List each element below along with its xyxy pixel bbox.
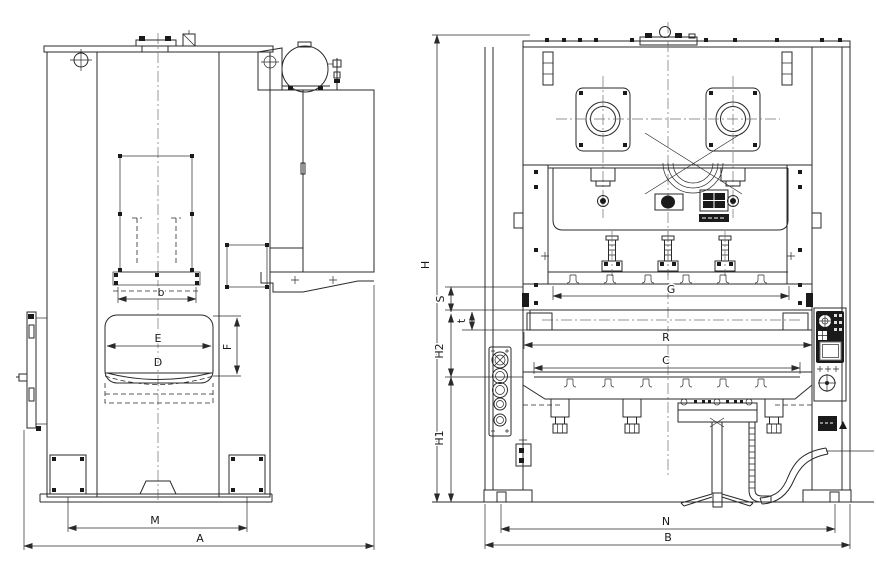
press-dimension-drawing: b E D F	[0, 0, 876, 563]
side-control-strip	[16, 312, 47, 431]
crown-top-hardware	[545, 27, 842, 46]
bolster	[523, 372, 812, 433]
dim-overall-depth: A	[24, 285, 374, 550]
side-feet	[40, 455, 272, 502]
front-feet	[432, 490, 874, 502]
bolster-leg-3	[765, 399, 783, 433]
slide-front	[523, 168, 812, 284]
dim-label-B: B	[664, 531, 672, 544]
dim-plate-thickness: t	[445, 310, 530, 330]
dim-label-S: S	[434, 295, 447, 302]
slide-button	[661, 196, 675, 209]
dim-h1: H1	[433, 377, 451, 502]
crown-slots	[543, 52, 792, 85]
dim-opening-height: F	[213, 316, 241, 376]
warning-triangle-icon	[839, 421, 847, 429]
dim-bolster-width: C	[534, 354, 800, 374]
dim-slide-width: G	[553, 283, 789, 300]
lifting-eye	[660, 27, 671, 38]
dim-label-C: C	[662, 354, 670, 367]
dim-label-E: E	[155, 332, 162, 345]
dim-h2: H2	[433, 314, 523, 377]
column-pad	[225, 243, 269, 289]
dim-label-t: t	[455, 318, 468, 323]
pedestal-stand	[678, 399, 757, 507]
dim-label-N: N	[662, 515, 670, 528]
dim-label-H: H	[419, 261, 432, 269]
slide-side	[113, 154, 200, 291]
bolster-leg-1	[551, 399, 569, 433]
drawing-canvas: b E D F	[0, 0, 876, 563]
strip-knob	[19, 374, 27, 381]
dim-label-A: A	[196, 532, 204, 545]
side-frame	[44, 33, 273, 500]
dim-anchor-span-front: N	[501, 504, 835, 533]
scrap-chute	[261, 272, 374, 292]
dim-label-F: F	[221, 344, 234, 350]
pedal-cable	[760, 448, 874, 504]
front-frame	[485, 22, 850, 490]
side-view: b E D F	[16, 30, 374, 550]
front-view: G H S t	[419, 22, 874, 549]
guide-rail	[527, 310, 812, 330]
cross-brace	[645, 133, 742, 194]
dim-label-b: b	[158, 286, 165, 299]
adjust-screw-2	[658, 231, 678, 276]
adjust-screw-3	[715, 231, 735, 276]
dim-slide-pad: b	[118, 286, 196, 303]
dim-stroke: S	[434, 287, 523, 312]
dim-label-G: G	[667, 283, 676, 296]
dim-label-D: D	[154, 356, 162, 369]
adjust-screw-1	[602, 231, 622, 276]
cable-conduit	[749, 422, 771, 502]
top-lifting-bracket	[136, 30, 195, 52]
dim-opening-width: E	[107, 332, 211, 346]
bolster-leg-2	[623, 399, 641, 433]
dim-label-M: M	[150, 514, 160, 527]
push-button-box	[489, 347, 531, 466]
dim-label-H1: H1	[433, 430, 446, 445]
dim-label-H2: H2	[433, 343, 446, 358]
rear-cabinet	[261, 90, 374, 292]
dim-label-R: R	[662, 331, 670, 344]
